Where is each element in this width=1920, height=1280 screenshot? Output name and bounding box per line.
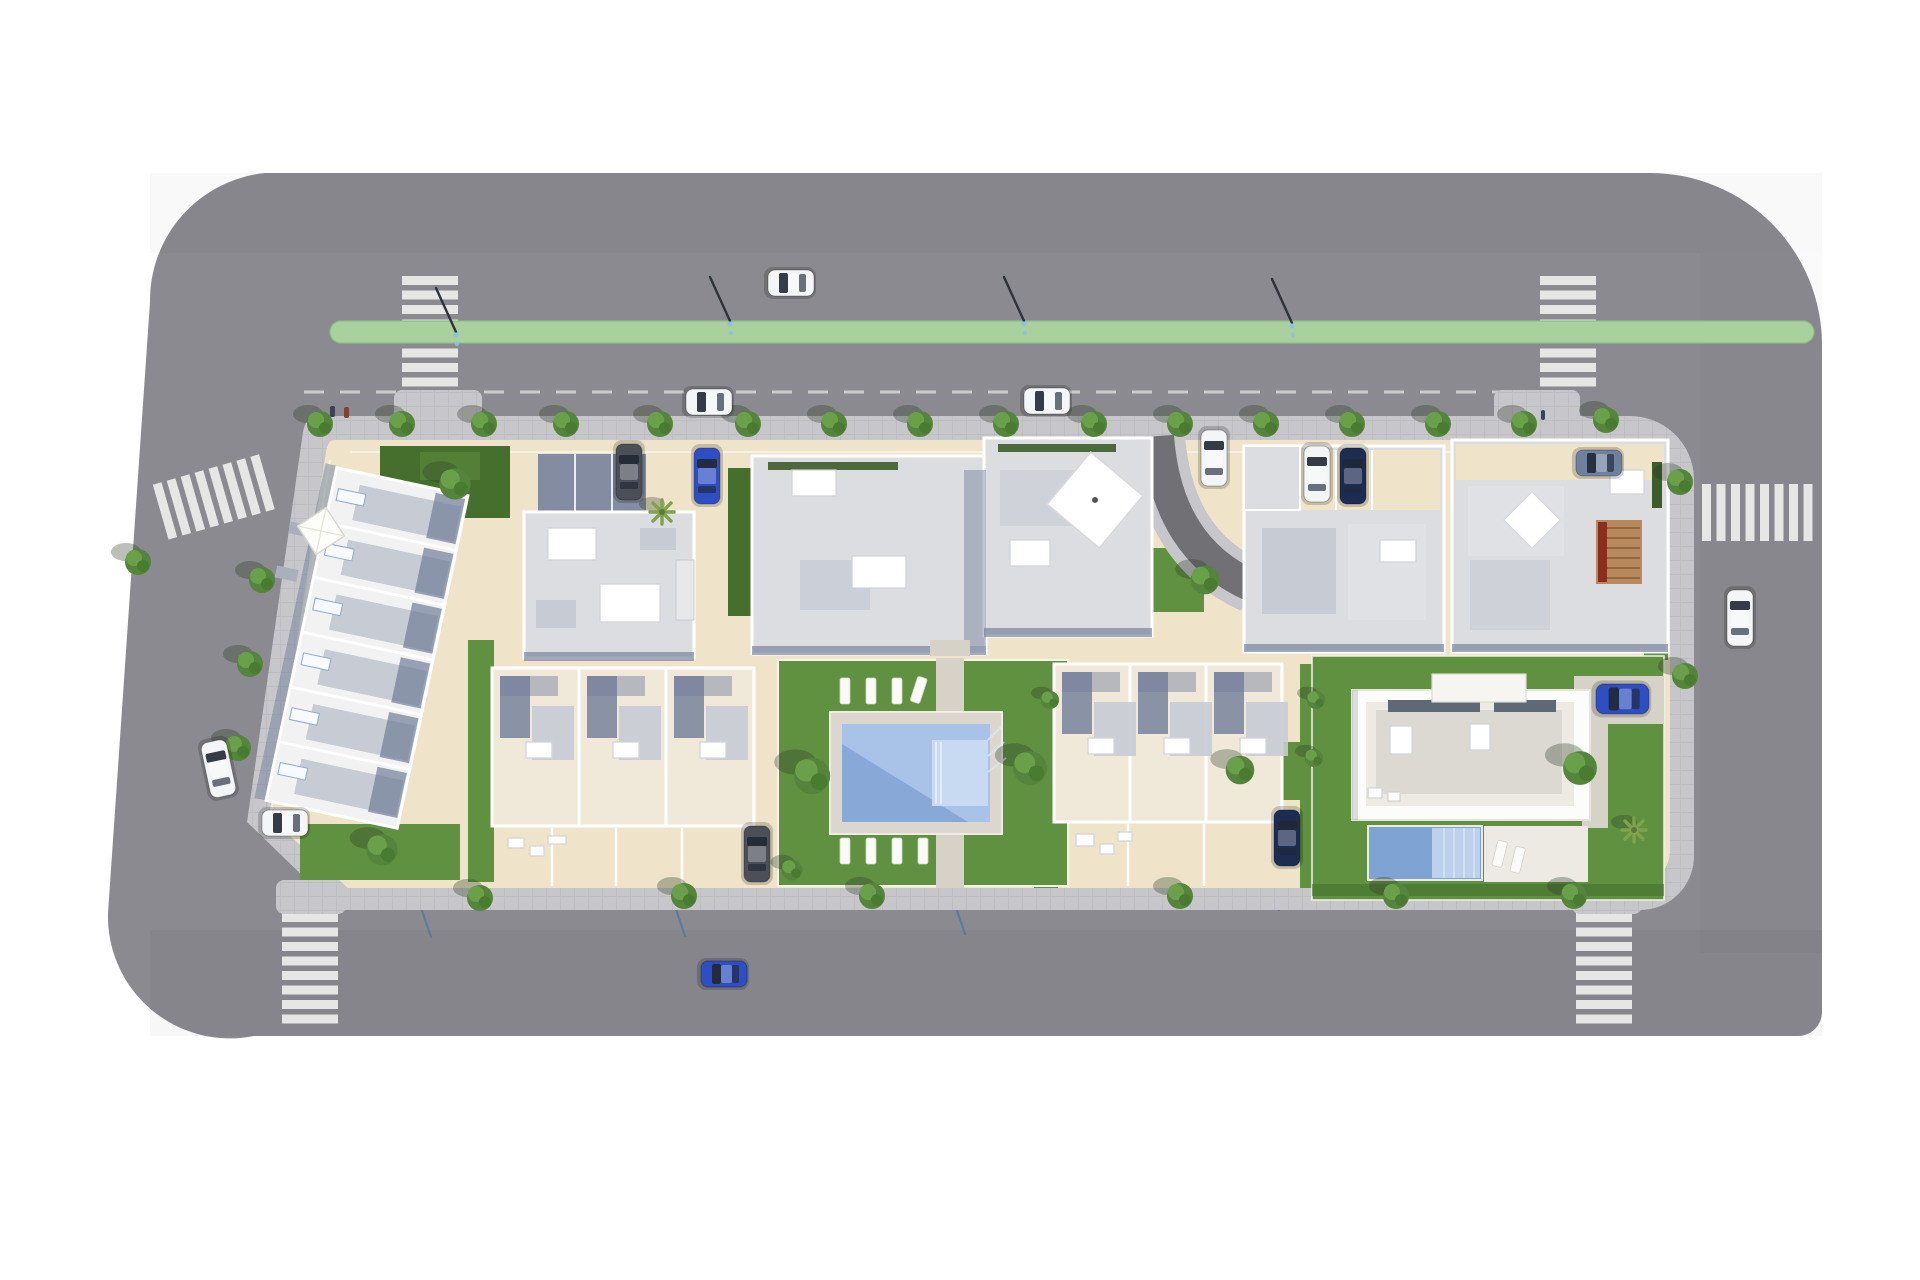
roof-structure	[852, 556, 906, 588]
car-white-top-road	[764, 267, 816, 299]
terrace-furniture	[1076, 834, 1094, 846]
car-blue-villa	[1591, 681, 1651, 718]
garden-path-north	[936, 658, 964, 714]
car-white-parked-west	[682, 386, 734, 418]
bike-lane	[330, 321, 1814, 343]
roof-terrace	[640, 528, 676, 550]
roof-structure	[1010, 540, 1050, 566]
car-blue-driveway	[691, 444, 723, 507]
roof-terrace	[536, 600, 576, 628]
terrace-furniture	[1118, 832, 1132, 841]
corner-terrace	[1244, 446, 1300, 510]
roof-terrace	[1348, 524, 1426, 620]
roof-structure	[792, 470, 836, 496]
car-navy-bay	[1337, 444, 1369, 507]
villa-lawn-edge	[1312, 884, 1664, 896]
bike-lane-surface	[330, 321, 1814, 343]
building-b	[752, 438, 1152, 656]
roof-terrace	[1470, 560, 1550, 630]
car-navy-row-br	[1271, 806, 1303, 869]
roof-structure	[600, 584, 660, 622]
car-white-parked-east	[1020, 385, 1072, 417]
terrace-furniture	[1100, 844, 1114, 854]
entrance-path	[930, 640, 970, 656]
building-d	[1452, 440, 1668, 652]
roof-hedge	[768, 462, 898, 470]
car-white-plot-driveway	[258, 807, 310, 839]
terrace-furniture	[1368, 788, 1382, 798]
sun-lounger	[866, 678, 876, 704]
east-wing-roof	[984, 438, 1152, 636]
roof-structure	[1380, 540, 1416, 562]
roof-structure	[548, 528, 596, 560]
sun-lounger	[840, 838, 850, 864]
lawn-court	[728, 468, 754, 616]
terrace-furniture	[508, 838, 524, 848]
car-blue-bottom-road	[697, 958, 749, 990]
car-silver-driveway	[1572, 447, 1624, 479]
road-shade-bottom	[150, 930, 1822, 1036]
car-white-bay	[1301, 442, 1333, 505]
sun-lounger	[892, 678, 902, 704]
villa-pool	[1368, 826, 1482, 880]
car-gray-row-bl	[741, 822, 773, 885]
facade-shadow	[524, 652, 694, 661]
person	[1541, 410, 1545, 420]
villa-upper-volume	[1432, 674, 1526, 702]
terrace-furniture	[530, 846, 544, 856]
garden-path-south	[936, 830, 964, 888]
site-plan-rendering	[0, 0, 1920, 1280]
car-white-right-road	[1724, 586, 1756, 649]
wooden-pergola	[1596, 520, 1642, 584]
car-white-curved-street	[1198, 426, 1230, 489]
west-wing-roof	[752, 456, 986, 654]
court-shadow	[964, 470, 986, 646]
car-gray-garage-court	[613, 440, 645, 503]
road-shade-right	[1700, 253, 1822, 953]
roof-structure	[1470, 724, 1490, 750]
sun-lounger	[866, 838, 876, 864]
roof-terrace	[1262, 528, 1336, 614]
person	[344, 407, 349, 418]
stairwell	[676, 560, 694, 620]
facade-shadow	[1244, 644, 1444, 652]
facade-shadow	[1352, 690, 1358, 820]
road-shade-top	[150, 173, 1822, 253]
roof-hedge	[998, 444, 1116, 452]
terrace-furniture	[1388, 792, 1400, 801]
roof-structure	[1390, 726, 1412, 754]
sun-lounger	[918, 838, 928, 864]
sun-lounger	[892, 838, 902, 864]
lawn-band-west	[468, 640, 494, 882]
facade-shadow	[984, 628, 1152, 637]
person	[330, 406, 335, 417]
facade-shadow	[1452, 644, 1668, 652]
site-plan-canvas	[0, 0, 1920, 1280]
terrace-furniture	[548, 836, 566, 844]
sun-lounger	[840, 678, 850, 704]
